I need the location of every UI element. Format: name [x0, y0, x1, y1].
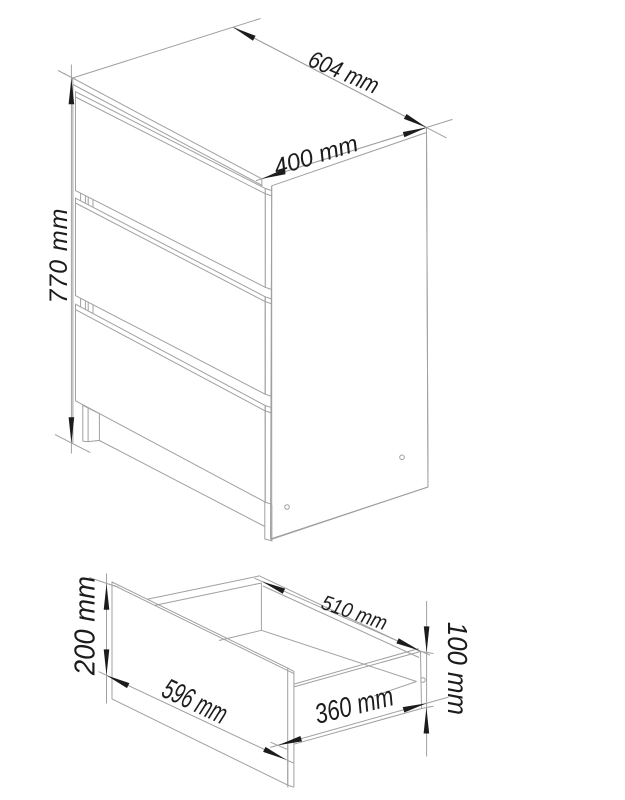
- svg-text:200 mm: 200 mm: [70, 576, 102, 676]
- svg-text:100 mm: 100 mm: [442, 622, 473, 715]
- svg-text:770 mm: 770 mm: [45, 209, 73, 304]
